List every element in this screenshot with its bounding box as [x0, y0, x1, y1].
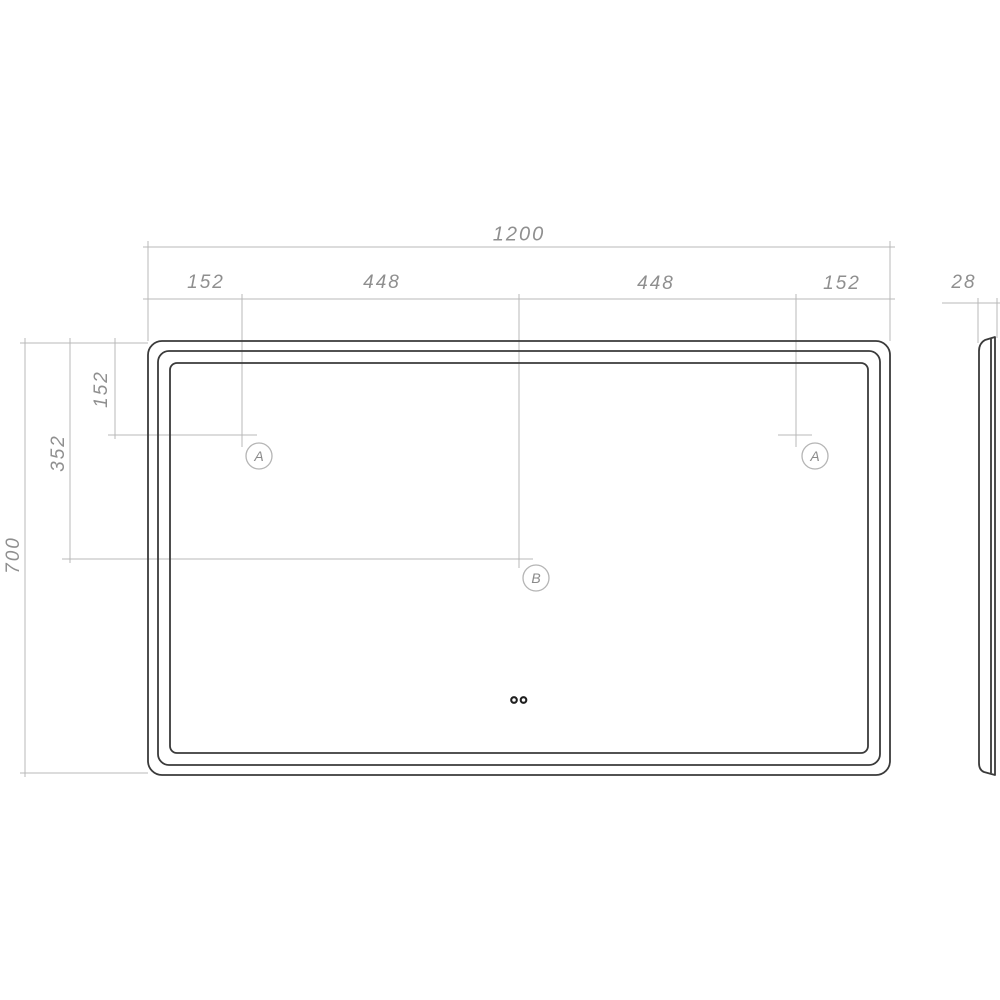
sensor-dot-left	[511, 697, 517, 703]
sensor-dot-right	[521, 697, 527, 703]
dim-label-seg-mid-right: 448	[637, 273, 675, 295]
dim-label-height-to-sensor: 152	[91, 370, 113, 408]
technical-drawing: 1200 152 448 448 152 28 152 352 700 A A …	[0, 0, 1000, 1000]
marker-label-b: B	[531, 570, 540, 586]
dim-label-seg-right: 152	[823, 273, 861, 295]
dimension-lines	[20, 241, 1000, 777]
dim-label-height-total: 700	[3, 536, 25, 574]
dim-label-depth: 28	[951, 272, 976, 294]
touch-sensor-dots	[511, 697, 526, 703]
mirror-side-view	[979, 337, 995, 775]
marker-label-a-left: A	[254, 448, 263, 464]
dim-label-seg-mid-left: 448	[363, 272, 401, 294]
drawing-lines	[0, 0, 1000, 1000]
side-profile-outline	[979, 337, 995, 775]
marker-label-a-right: A	[810, 448, 819, 464]
dim-label-seg-left: 152	[187, 272, 225, 294]
dim-label-width-total: 1200	[493, 224, 546, 247]
dim-label-height-to-center: 352	[48, 434, 70, 472]
marker-circles	[246, 443, 828, 591]
